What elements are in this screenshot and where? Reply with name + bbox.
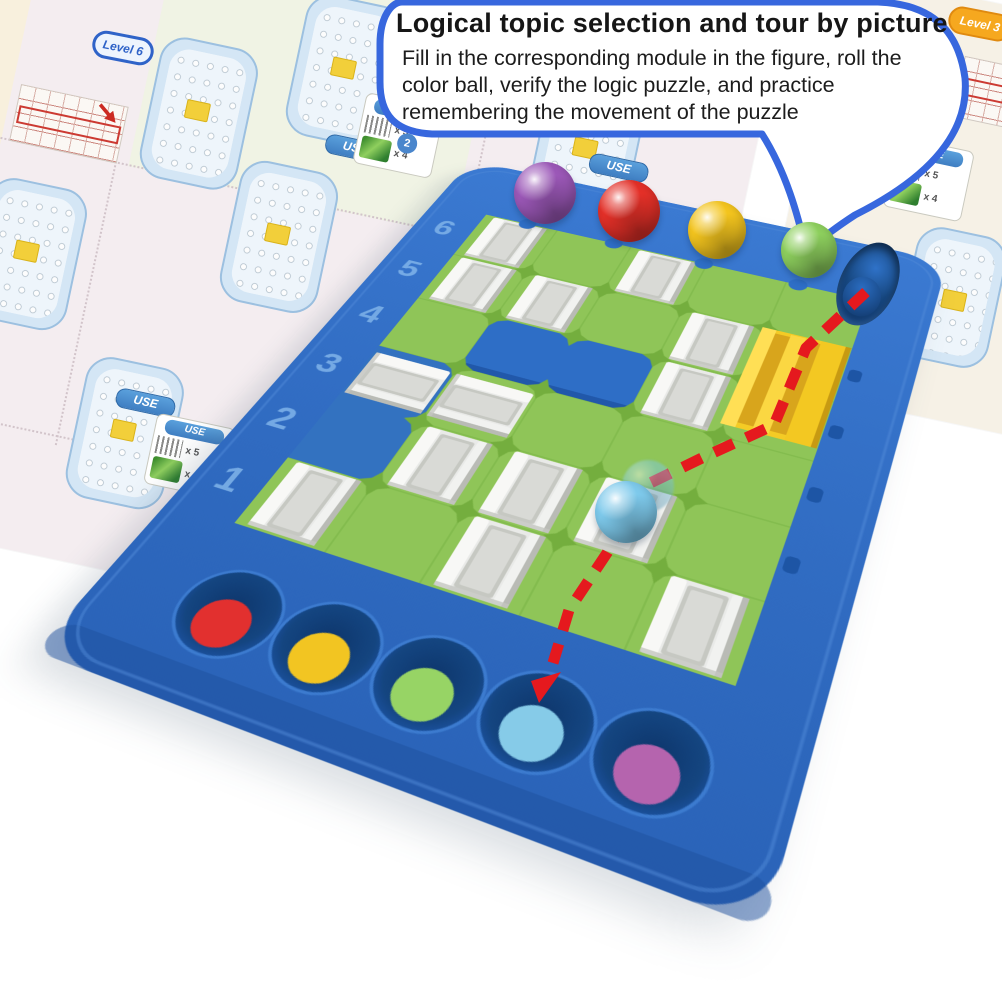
ball-green [781, 222, 837, 278]
map-thumbnail [149, 456, 183, 484]
barcode-icon [154, 435, 183, 458]
legend-card: USE x 5 x 4 [882, 135, 975, 222]
ball-red [598, 180, 660, 242]
map-thumbnail [358, 135, 392, 163]
map-thumbnail [888, 179, 922, 207]
barcode-icon [893, 158, 922, 181]
bubble-body: Fill in the corresponding module in the … [402, 45, 907, 126]
barcode-icon [364, 115, 393, 138]
legend-count: x 5 [184, 445, 200, 459]
legend-count: x 5 [923, 168, 939, 182]
question-dots [0, 186, 79, 322]
puzzle-diagram-grid [952, 56, 1002, 139]
puzzle-card [0, 173, 92, 335]
speech-bubble-text: Logical topic selection and tour by pict… [396, 8, 956, 126]
puzzle-diagram-grid [9, 84, 129, 164]
ball-yellow [688, 201, 746, 259]
bubble-title: Logical topic selection and tour by pict… [396, 8, 956, 39]
ball-purple [514, 162, 576, 224]
ball-light-blue-rolling [595, 481, 657, 543]
legend-count: x 4 [923, 191, 939, 205]
